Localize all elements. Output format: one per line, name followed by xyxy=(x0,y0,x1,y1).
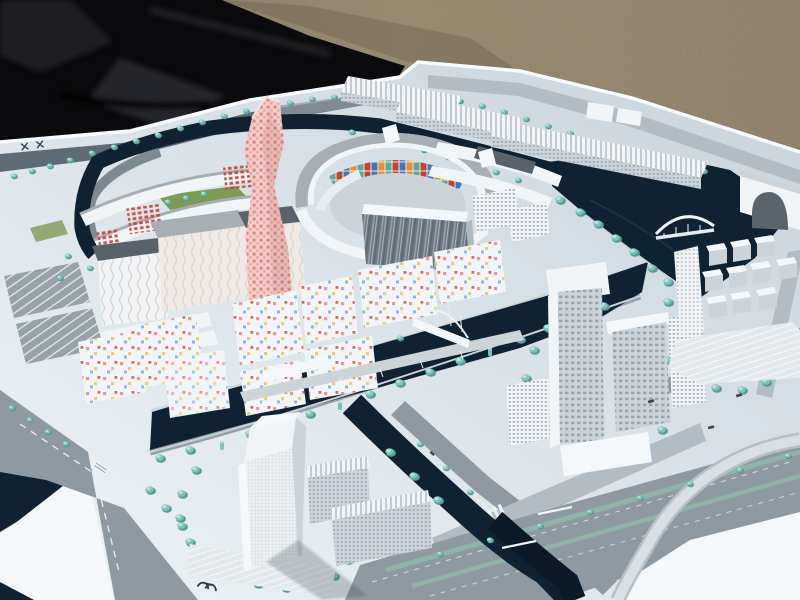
model-photo: Architectural scale model of a waterfron… xyxy=(0,0,800,600)
photo-stage: Architectural scale model of a waterfron… xyxy=(0,0,800,600)
